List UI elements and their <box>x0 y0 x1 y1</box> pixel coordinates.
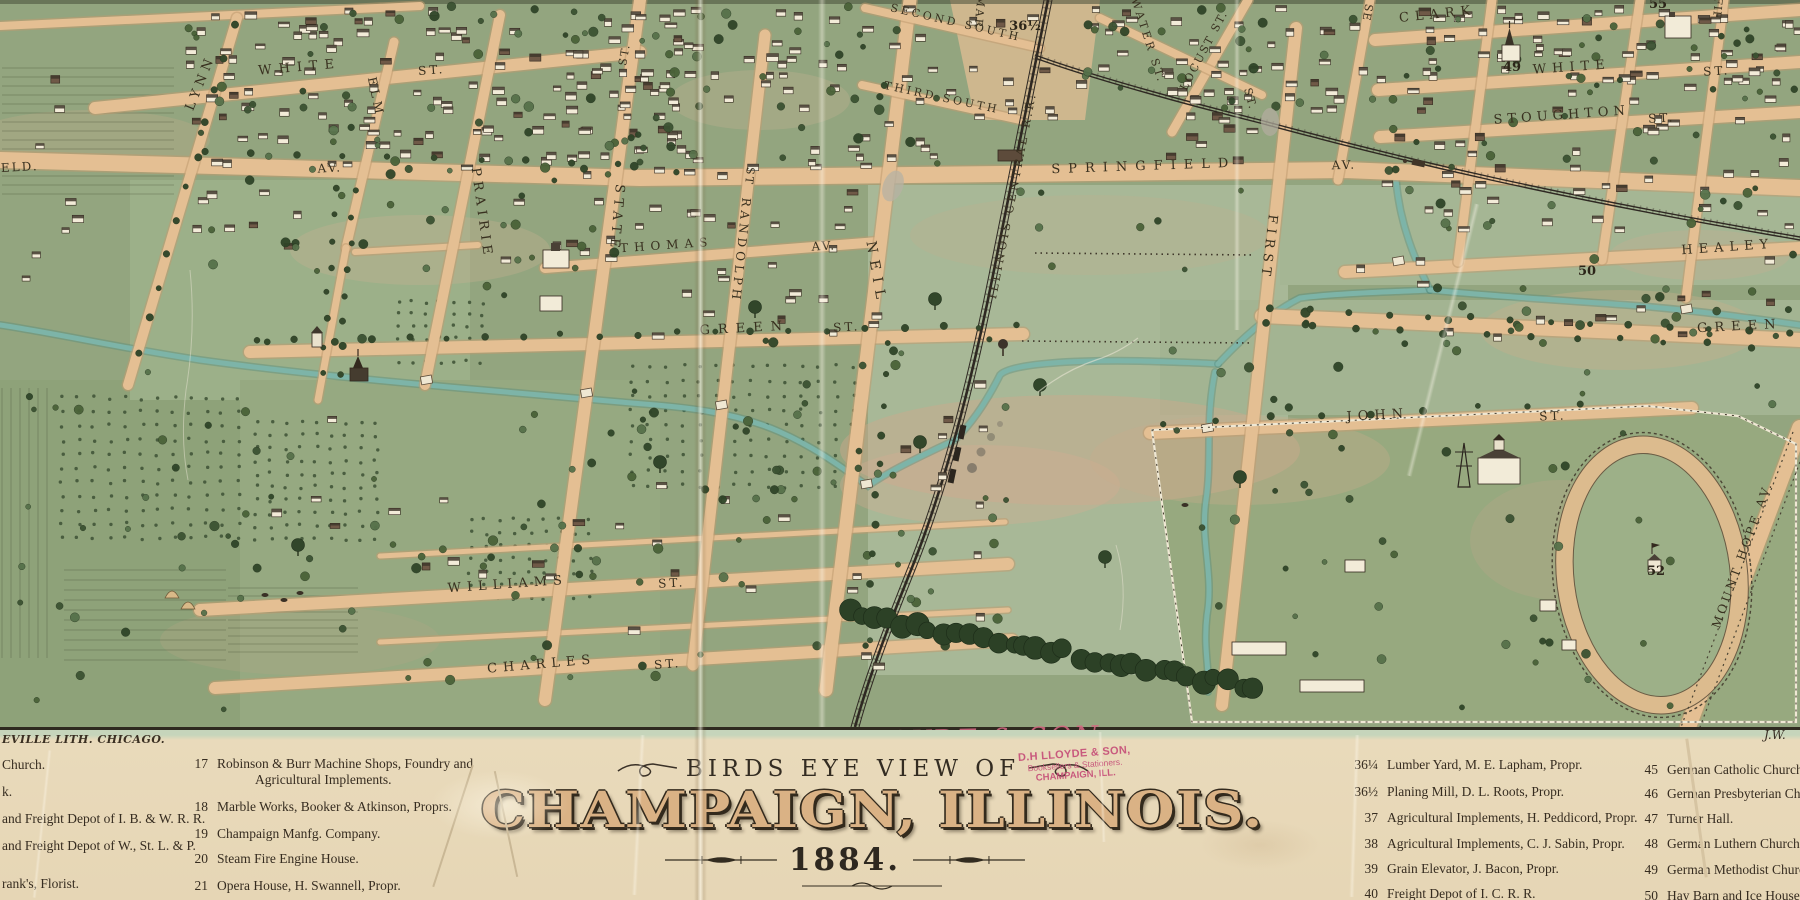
legend-label: Opera House, H. Swannell, Propr. <box>217 878 401 894</box>
legend-number: 48 <box>1632 836 1658 852</box>
legend-item: 37Agricultural Implements, H. Peddicord,… <box>1352 810 1637 826</box>
legend-item: 48German Luthern Church. <box>1632 836 1800 852</box>
street-label-st: ST <box>742 166 757 186</box>
legend-fragment: Church. <box>2 757 45 773</box>
legend-item: 47Turner Hall. <box>1632 811 1733 827</box>
legend-fragment: and Freight Depot of W., St. L. & P. <box>2 838 196 854</box>
year-ornament-right-icon <box>913 854 1025 866</box>
street-label-eld: ELD. <box>1 159 39 175</box>
legend-label: Steam Fire Engine House. <box>217 851 359 867</box>
street-label-av: AV. <box>810 238 836 253</box>
legend-item: 17Robinson & Burr Machine Shops, Foundry… <box>182 756 473 788</box>
artist-signature-fragment: J.W. <box>1764 728 1786 742</box>
legend-item: 40Freight Depot of I. C. R. R. <box>1352 886 1536 900</box>
street-label-st: ST. <box>654 656 682 672</box>
legend-number: 47 <box>1632 811 1658 827</box>
legend-item: 45German Catholic Church. <box>1632 762 1800 778</box>
year-text: 1884. <box>789 842 901 878</box>
legend-number: 21 <box>182 878 208 894</box>
legend-fragment: and Freight Depot of I. B. & W. R. R. <box>2 811 205 827</box>
map-illustration: WHITEST.LYNNELMAV.ELD.PRAIRIESTATEST.THO… <box>0 0 1800 727</box>
legend-item: 19Champaign Manfg. Company. <box>182 826 380 842</box>
street-label-av: AV. <box>1330 158 1356 173</box>
legend-fragment: rank's, Florist. <box>2 876 79 892</box>
legend-item: 20Steam Fire Engine House. <box>182 851 359 867</box>
street-label-st: ST. <box>1648 110 1676 125</box>
subtitle-text: BIRDS EYE VIEW OF <box>686 756 1020 782</box>
legend-item: 39Grain Elevator, J. Bacon, Propr. <box>1352 861 1559 877</box>
legend-number: 50 <box>1632 888 1658 900</box>
legend-number: 49 <box>1632 862 1658 878</box>
legend-label: Planing Mill, D. L. Roots, Propr. <box>1387 784 1564 800</box>
street-label-mar: MAR <box>972 0 988 30</box>
flourish-left-icon <box>616 759 678 779</box>
legend-label: Robinson & Burr Machine Shops, Foundry a… <box>217 756 473 788</box>
legend-label: Marble Works, Booker & Atkinson, Proprs. <box>217 799 452 815</box>
reference-number-50: 50 <box>1578 264 1596 279</box>
legend-item: 38Agricultural Implements, C. J. Sabin, … <box>1352 836 1625 852</box>
legend-label: German Catholic Church. <box>1667 762 1800 778</box>
legend-fragment: k. <box>2 784 12 800</box>
birdseye-map-page: WHITEST.LYNNELMAV.ELD.PRAIRIESTATEST.THO… <box>0 0 1800 900</box>
reference-number-36: 36½ <box>1009 19 1041 34</box>
legend-label: Grain Elevator, J. Bacon, Propr. <box>1387 861 1559 877</box>
street-label-st: ST. <box>833 319 861 334</box>
legend-item: 36½Planing Mill, D. L. Roots, Propr. <box>1352 784 1564 800</box>
legend-number: 39 <box>1352 861 1378 877</box>
legend-label: Turner Hall. <box>1667 811 1733 827</box>
year-row: 1884. <box>665 842 1025 878</box>
legend-number: 17 <box>182 756 208 788</box>
reference-number-49: 49 <box>1503 60 1521 75</box>
street-label-st: ST. <box>658 575 686 590</box>
legend-number: 38 <box>1352 836 1378 852</box>
title-flourish-icon <box>802 878 942 897</box>
street-label-st: ST. <box>1703 63 1731 78</box>
legend-item: 46German Presbyterian Chu <box>1632 786 1800 802</box>
legend-item: 50Hay Barn and Ice House, C <box>1632 888 1800 900</box>
legend-item: 21Opera House, H. Swannell, Propr. <box>182 878 401 894</box>
legend-label: Agricultural Implements, H. Peddicord, P… <box>1387 810 1637 826</box>
street-label-st: ST. <box>1539 409 1567 424</box>
street-label-st: ST. <box>418 62 446 78</box>
legend-label: German Luthern Church. <box>1667 836 1800 852</box>
legend-item: 36¼Lumber Yard, M. E. Lapham, Propr. <box>1352 757 1582 773</box>
legend-number: 19 <box>182 826 208 842</box>
reference-number-55: 55 <box>1649 0 1667 12</box>
bottom-margin: EVILLE LITH. CHICAGO. J.W. BIRDS EYE VIE… <box>0 730 1800 900</box>
legend-number: 36¼ <box>1352 757 1378 773</box>
page-title: CHAMPAIGN, ILLINOIS. <box>481 780 1264 839</box>
legend-label: Lumber Yard, M. E. Lapham, Propr. <box>1387 757 1582 773</box>
legend-number: 36½ <box>1352 784 1378 800</box>
legend-number: 37 <box>1352 810 1378 826</box>
legend-number: 46 <box>1632 786 1658 802</box>
street-label-av: AV. <box>316 160 342 175</box>
legend-item: 18Marble Works, Booker & Atkinson, Propr… <box>182 799 452 815</box>
legend-label: German Presbyterian Chu <box>1667 786 1800 802</box>
street-label-fif: FIF <box>1710 0 1725 20</box>
year-ornament-left-icon <box>665 854 777 866</box>
legend-label: Freight Depot of I. C. R. R. <box>1387 886 1536 900</box>
legend-number: 40 <box>1352 886 1378 900</box>
legend-item: 49German Methodist Church <box>1632 862 1800 878</box>
lithographer-credit: EVILLE LITH. CHICAGO. <box>2 733 165 746</box>
legend-label: Champaign Manfg. Company. <box>217 826 380 842</box>
reference-number-52: 52 <box>1647 564 1665 579</box>
legend-label: Hay Barn and Ice House, C <box>1667 888 1800 900</box>
legend-number: 20 <box>182 851 208 867</box>
map-canvas: WHITEST.LYNNELMAV.ELD.PRAIRIESTATEST.THO… <box>0 0 1800 730</box>
legend-label: German Methodist Church <box>1667 862 1800 878</box>
legend-number: 45 <box>1632 762 1658 778</box>
legend-label: Agricultural Implements, C. J. Sabin, Pr… <box>1387 836 1625 852</box>
legend-number: 18 <box>182 799 208 815</box>
